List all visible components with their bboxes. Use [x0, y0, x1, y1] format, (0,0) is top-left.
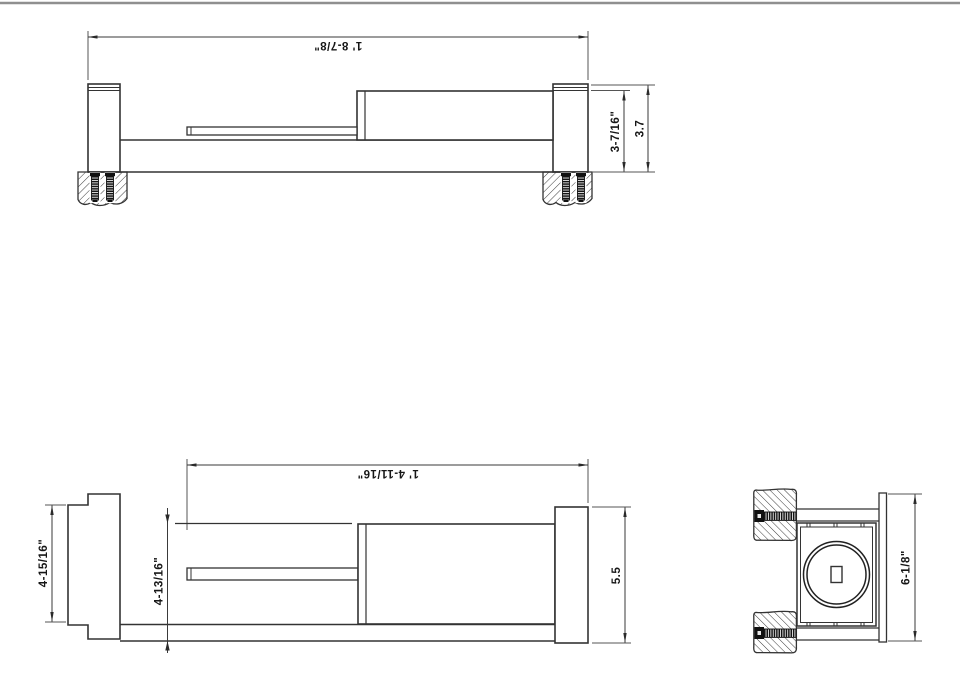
end-bottom-mount-block: [754, 611, 797, 653]
plan-carriage-box: [358, 524, 555, 624]
side-elevation-view: 1' 8-7/8": [78, 31, 655, 206]
plan-right-end-plate: [555, 507, 588, 643]
drawing-canvas: 1' 8-7/8": [0, 0, 960, 680]
anchor-bolt: [561, 173, 572, 204]
anchor-bolt: [105, 173, 116, 204]
side-dim-overall-height-label: 3.7: [635, 120, 647, 138]
anchor-bolt: [576, 173, 587, 204]
plan-dim-end-plate-width: 4-15/16": [38, 505, 66, 622]
side-slide-plate: [187, 127, 357, 135]
plan-slide-plate: [187, 568, 358, 580]
mount-bolt: [755, 627, 797, 639]
end-plate: [879, 493, 887, 642]
plan-view: 1' 4-11/16" 4-15/16": [38, 459, 631, 653]
plan-left-bracket: [68, 494, 120, 639]
mount-bolt: [755, 510, 797, 522]
cad-drawing: 1' 8-7/8": [0, 0, 960, 680]
plan-dim-carriage-width-label: 4-13/16": [154, 557, 166, 605]
end-shaft-key: [831, 567, 842, 583]
plan-dim-end-plate-width-label: 4-15/16": [38, 539, 50, 587]
end-view: 6-1/8": [754, 489, 922, 653]
plan-dim-carriage-width: 4-13/16": [154, 508, 170, 653]
plan-dim-overall-width: 5.5: [592, 507, 631, 643]
side-dim-overall-height: 3.7: [591, 85, 655, 172]
side-right-post: [553, 84, 588, 172]
side-left-mount-block: [78, 172, 127, 206]
plan-dim-overall-width-label: 5.5: [611, 567, 623, 585]
side-carriage-box: [357, 91, 553, 140]
side-base-rail: [88, 140, 588, 172]
plan-dim-length: 1' 4-11/16": [187, 459, 588, 530]
anchor-bolt: [90, 173, 101, 204]
end-dim-overall-height: 6-1/8": [888, 494, 922, 641]
end-motor-body: [797, 523, 876, 626]
side-dim-length-label: 1' 8-7/8": [314, 39, 363, 51]
plan-base-rail: [120, 625, 555, 642]
end-dim-overall-height-label: 6-1/8": [901, 550, 913, 585]
side-left-post: [88, 84, 120, 172]
side-right-mount-block: [543, 172, 592, 206]
side-dim-length: 1' 8-7/8": [88, 31, 588, 80]
end-top-mount-block: [754, 489, 797, 541]
plan-dim-length-label: 1' 4-11/16": [357, 467, 419, 479]
side-dim-body-height-label: 3-7/16": [610, 111, 622, 153]
